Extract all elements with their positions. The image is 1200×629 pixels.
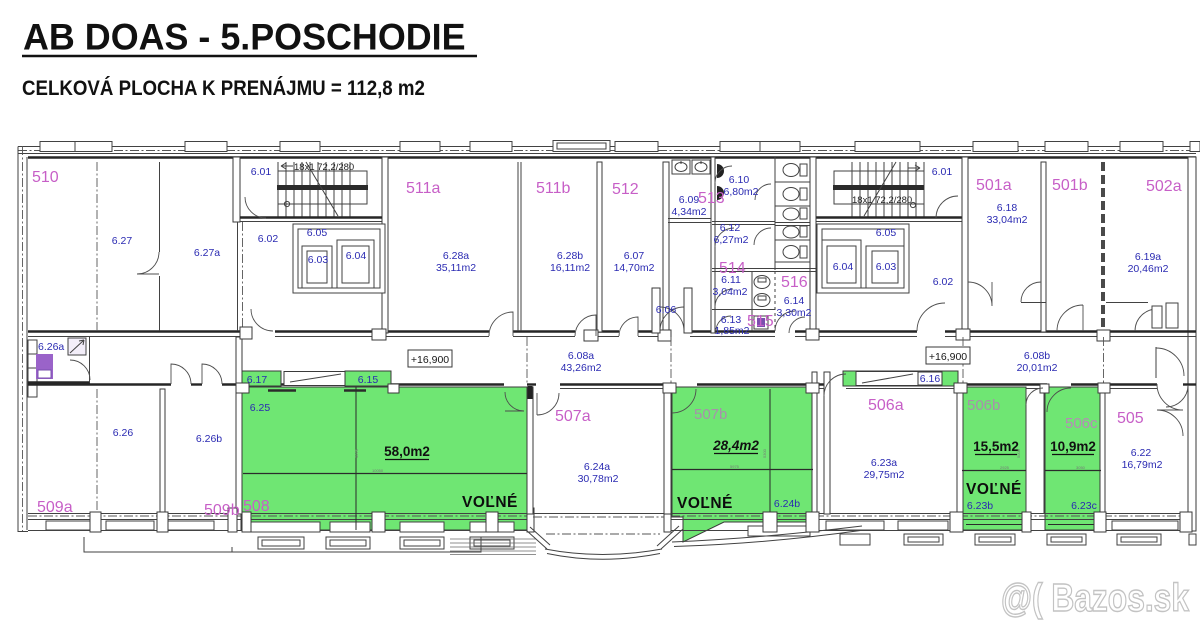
svg-text:6,27m2: 6,27m2 bbox=[713, 234, 748, 246]
svg-text:6.04: 6.04 bbox=[833, 261, 854, 273]
svg-text:6.10: 6.10 bbox=[729, 174, 750, 186]
svg-text:3050: 3050 bbox=[1076, 465, 1086, 470]
svg-text:43,26m2: 43,26m2 bbox=[561, 362, 602, 374]
svg-text:2925: 2925 bbox=[1000, 465, 1010, 470]
svg-text:6.15: 6.15 bbox=[358, 374, 379, 386]
svg-text:6.18: 6.18 bbox=[997, 202, 1018, 214]
svg-text:3,04m2: 3,04m2 bbox=[712, 286, 747, 298]
svg-text:1,85m2: 1,85m2 bbox=[714, 325, 749, 337]
svg-text:6.03: 6.03 bbox=[308, 254, 329, 266]
svg-text:16,79m2: 16,79m2 bbox=[1122, 459, 1163, 471]
svg-text:+16,900: +16,900 bbox=[929, 351, 967, 363]
svg-text:6.03: 6.03 bbox=[876, 261, 897, 273]
svg-text:28,4m2: 28,4m2 bbox=[712, 438, 759, 453]
svg-text:6.05: 6.05 bbox=[876, 227, 897, 239]
svg-text:58,0m2: 58,0m2 bbox=[384, 444, 430, 459]
svg-text:5000: 5000 bbox=[1016, 448, 1021, 458]
svg-text:VOĽNÉ: VOĽNÉ bbox=[462, 494, 518, 511]
svg-text:507b: 507b bbox=[694, 406, 727, 423]
svg-text:3275: 3275 bbox=[354, 448, 359, 458]
svg-text:6.23a: 6.23a bbox=[871, 457, 897, 469]
svg-text:6.26: 6.26 bbox=[113, 427, 134, 439]
svg-text:6.07: 6.07 bbox=[624, 250, 645, 262]
svg-text:501a: 501a bbox=[976, 177, 1012, 194]
svg-text:VOĽNÉ: VOĽNÉ bbox=[677, 495, 733, 512]
svg-text:6.23c: 6.23c bbox=[1071, 500, 1097, 512]
svg-text:20,46m2: 20,46m2 bbox=[1128, 263, 1169, 275]
svg-text:501b: 501b bbox=[1052, 177, 1088, 194]
svg-text:6.27: 6.27 bbox=[112, 235, 133, 247]
svg-text:505: 505 bbox=[1117, 410, 1144, 427]
svg-text:509a: 509a bbox=[37, 499, 73, 516]
svg-text:6.08b: 6.08b bbox=[1024, 350, 1050, 362]
svg-text:6.24b: 6.24b bbox=[774, 498, 800, 510]
svg-text:6.25: 6.25 bbox=[250, 402, 271, 414]
svg-text:16,11m2: 16,11m2 bbox=[550, 262, 590, 274]
svg-text:6.27a: 6.27a bbox=[194, 247, 220, 259]
svg-text:6.11: 6.11 bbox=[721, 274, 741, 286]
svg-text:6.04: 6.04 bbox=[346, 250, 367, 262]
svg-text:VOĽNÉ: VOĽNÉ bbox=[966, 481, 1022, 498]
svg-text:3,30m2: 3,30m2 bbox=[776, 307, 811, 319]
svg-text:33,04m2: 33,04m2 bbox=[987, 214, 1028, 226]
svg-text:10,9m2: 10,9m2 bbox=[1050, 439, 1096, 454]
svg-text:6.16: 6.16 bbox=[920, 373, 941, 385]
svg-text:512: 512 bbox=[612, 181, 639, 198]
svg-text:6.19a: 6.19a bbox=[1135, 251, 1161, 263]
svg-text:510: 510 bbox=[32, 169, 59, 186]
svg-text:513: 513 bbox=[698, 190, 725, 207]
svg-text:6.01: 6.01 bbox=[932, 166, 953, 178]
svg-text:CELKOVÁ PLOCHA K PRENÁJMU = 11: CELKOVÁ PLOCHA K PRENÁJMU = 112,8 m2 bbox=[22, 76, 425, 101]
svg-text:6.26a: 6.26a bbox=[38, 341, 64, 353]
svg-text:6.28b: 6.28b bbox=[557, 250, 583, 262]
svg-text:6.17: 6.17 bbox=[247, 374, 268, 386]
svg-text:6.01: 6.01 bbox=[251, 166, 272, 178]
svg-text:+16,900: +16,900 bbox=[411, 354, 449, 366]
svg-text:6.26b: 6.26b bbox=[196, 433, 222, 445]
svg-text:508: 508 bbox=[243, 498, 270, 515]
svg-text:5300: 5300 bbox=[762, 448, 767, 458]
svg-text:29,75m2: 29,75m2 bbox=[864, 469, 905, 481]
svg-text:6.14: 6.14 bbox=[784, 295, 805, 307]
svg-text:6.05: 6.05 bbox=[307, 227, 328, 239]
svg-text:6.06: 6.06 bbox=[656, 304, 677, 316]
svg-text:18x1 72,2/280: 18x1 72,2/280 bbox=[294, 162, 354, 173]
svg-text:6,80m2: 6,80m2 bbox=[723, 186, 758, 198]
svg-text:516: 516 bbox=[781, 274, 808, 291]
svg-text:6.22: 6.22 bbox=[1131, 447, 1152, 459]
svg-text:6.08a: 6.08a bbox=[568, 350, 594, 362]
svg-text:14,70m2: 14,70m2 bbox=[614, 262, 655, 274]
svg-text:6.09: 6.09 bbox=[679, 194, 700, 206]
svg-text:511b: 511b bbox=[536, 180, 571, 197]
svg-text:30,78m2: 30,78m2 bbox=[578, 473, 619, 485]
svg-text:509b: 509b bbox=[204, 502, 240, 519]
svg-text:6.12: 6.12 bbox=[720, 222, 741, 234]
svg-text:506b: 506b bbox=[967, 397, 1000, 414]
svg-text:507a: 507a bbox=[555, 408, 591, 425]
svg-text:502a: 502a bbox=[1146, 178, 1182, 195]
svg-text:506c: 506c bbox=[1065, 415, 1098, 432]
svg-text:6.23b: 6.23b bbox=[967, 500, 993, 512]
svg-text:4,34m2: 4,34m2 bbox=[671, 206, 706, 218]
svg-text:515: 515 bbox=[747, 313, 774, 330]
svg-text:35,11m2: 35,11m2 bbox=[436, 262, 476, 274]
svg-text:18x1 72,2/280: 18x1 72,2/280 bbox=[852, 195, 912, 206]
svg-text:20,01m2: 20,01m2 bbox=[1017, 362, 1058, 374]
svg-text:10050: 10050 bbox=[372, 468, 384, 473]
svg-text:511a: 511a bbox=[406, 180, 441, 197]
svg-text:5975: 5975 bbox=[730, 464, 740, 469]
svg-text:6.02: 6.02 bbox=[258, 233, 279, 245]
svg-text:6.28a: 6.28a bbox=[443, 250, 469, 262]
svg-text:@( Bazos.sk: @( Bazos.sk bbox=[1001, 577, 1189, 620]
svg-text:AB DOAS - 5.POSCHODIE: AB DOAS - 5.POSCHODIE bbox=[23, 16, 466, 58]
svg-text:6.02: 6.02 bbox=[933, 276, 954, 288]
svg-text:506a: 506a bbox=[868, 397, 904, 414]
svg-text:15,5m2: 15,5m2 bbox=[973, 439, 1019, 454]
svg-text:6.24a: 6.24a bbox=[584, 461, 610, 473]
